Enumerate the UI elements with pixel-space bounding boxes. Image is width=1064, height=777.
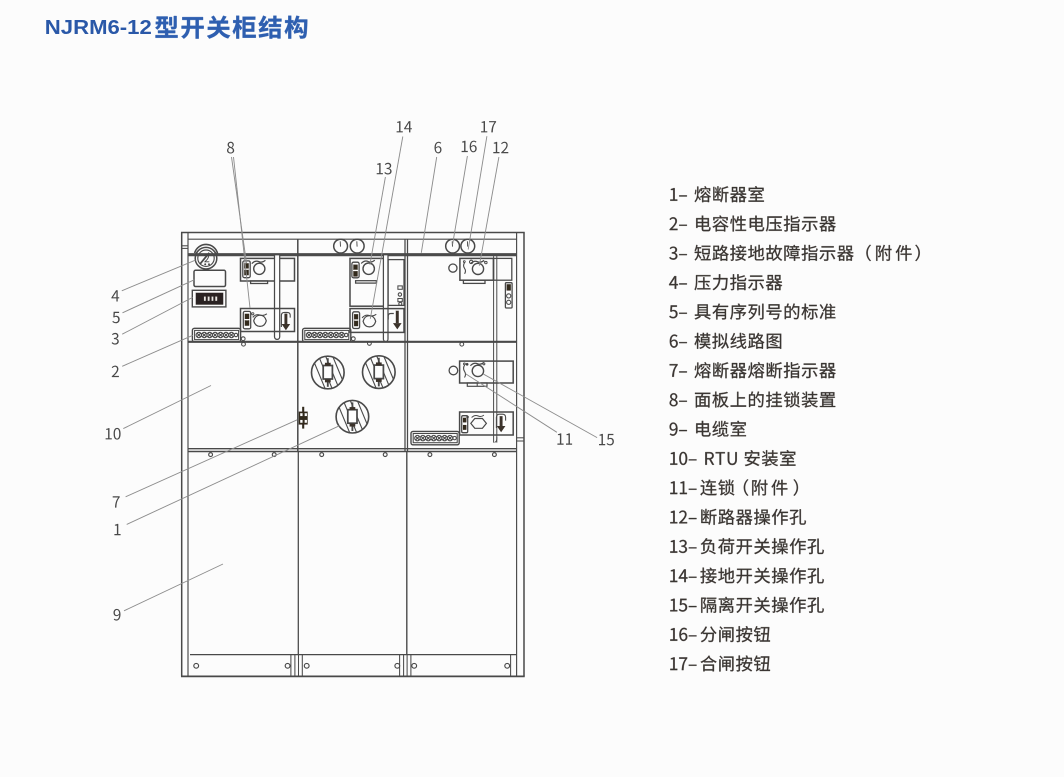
svg-text:NJRM6-12: NJRM6-12 bbox=[45, 17, 152, 39]
